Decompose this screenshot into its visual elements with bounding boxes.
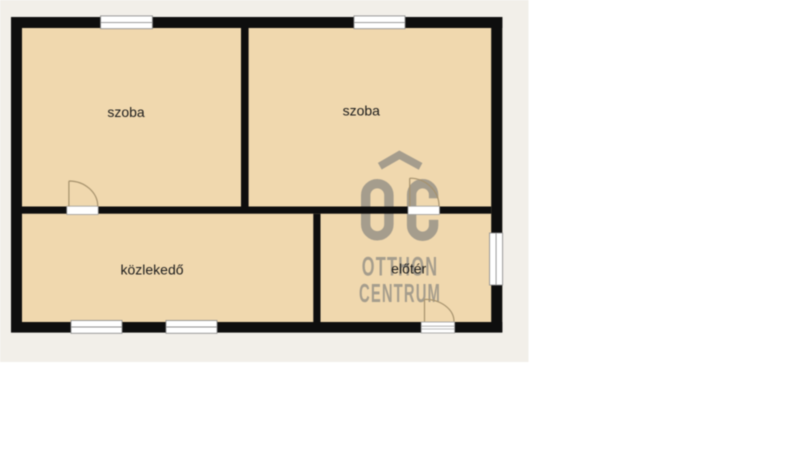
svg-text:szoba: szoba	[107, 104, 145, 120]
svg-text:közlekedő: közlekedő	[120, 262, 183, 278]
svg-text:szoba: szoba	[343, 102, 381, 118]
svg-text:CENTRUM: CENTRUM	[359, 278, 441, 308]
svg-text:előtér: előtér	[391, 261, 426, 277]
